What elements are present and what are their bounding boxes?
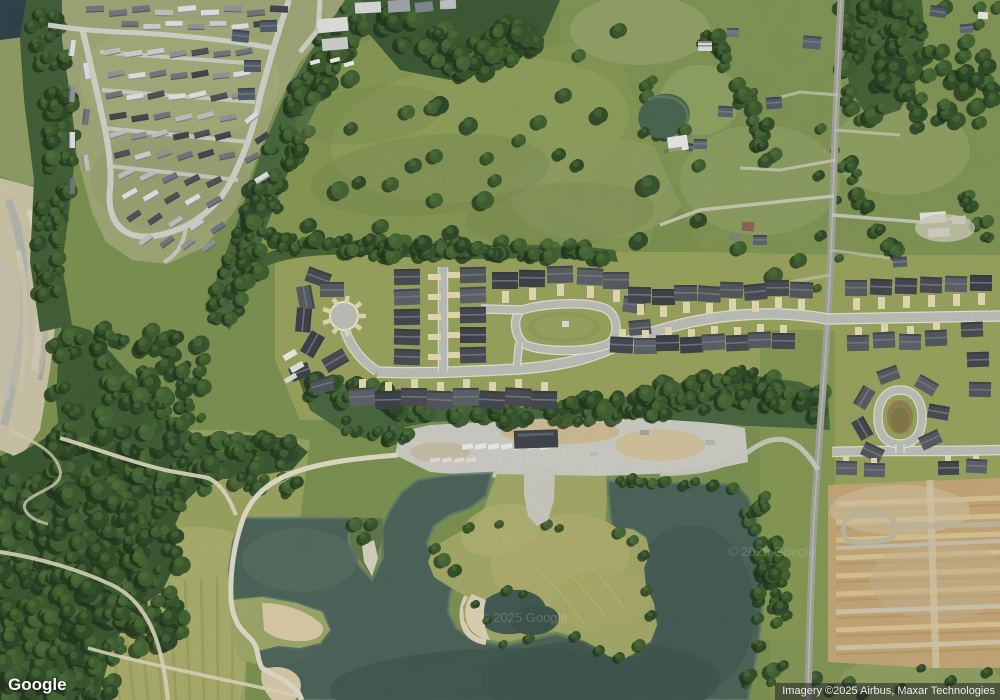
svg-text:© 2025 Google: © 2025 Google <box>480 610 568 625</box>
svg-text:© 2025 Google: © 2025 Google <box>728 544 816 559</box>
